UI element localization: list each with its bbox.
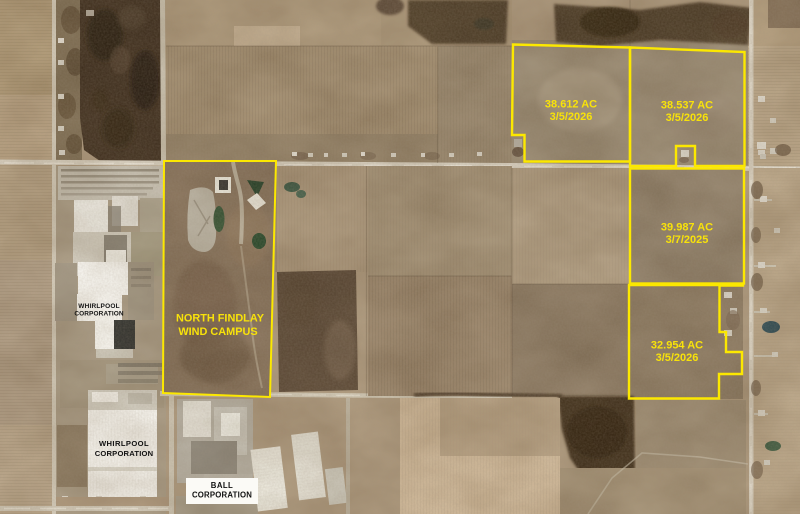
svg-text:38.537 AC: 38.537 AC bbox=[661, 100, 713, 112]
svg-text:3/5/2026: 3/5/2026 bbox=[656, 352, 699, 364]
svg-text:WHIRLPOOL: WHIRLPOOL bbox=[78, 303, 120, 310]
svg-text:WHIRLPOOL: WHIRLPOOL bbox=[99, 439, 149, 448]
svg-text:NORTH FINDLAY: NORTH FINDLAY bbox=[176, 313, 265, 325]
svg-text:CORPORATION: CORPORATION bbox=[74, 311, 124, 318]
svg-text:BALL: BALL bbox=[211, 481, 233, 490]
svg-text:CORPORATION: CORPORATION bbox=[192, 491, 252, 500]
svg-text:WIND CAMPUS: WIND CAMPUS bbox=[178, 326, 257, 338]
svg-text:39.987 AC: 39.987 AC bbox=[661, 222, 713, 234]
svg-text:3/5/2026: 3/5/2026 bbox=[550, 111, 593, 123]
svg-text:38.612 AC: 38.612 AC bbox=[545, 99, 597, 111]
svg-text:3/7/2025: 3/7/2025 bbox=[666, 234, 709, 246]
svg-text:3/5/2026: 3/5/2026 bbox=[666, 112, 709, 124]
svg-text:CORPORATION: CORPORATION bbox=[95, 449, 154, 458]
svg-text:32.954 AC: 32.954 AC bbox=[651, 340, 703, 352]
